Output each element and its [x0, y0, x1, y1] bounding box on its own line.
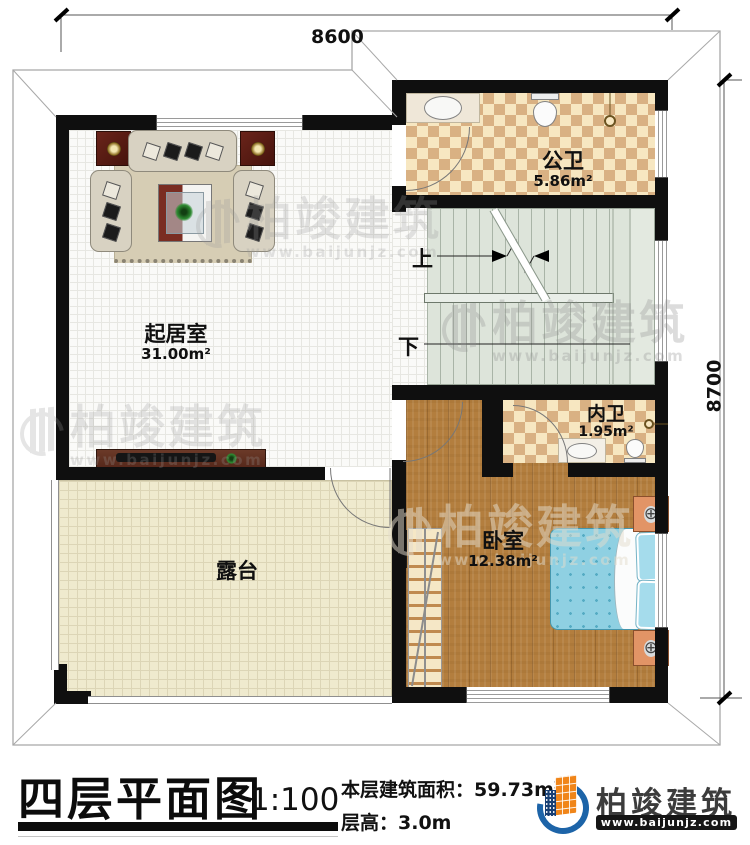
- title-underline: [18, 822, 338, 831]
- dimension-right: 8700: [703, 360, 725, 413]
- sheet-info: 本层建筑面积：59.73m2 层高：3.0m: [341, 774, 562, 841]
- floor-area-line: 本层建筑面积：59.73m2: [341, 774, 562, 807]
- room-label-terrace: 露台: [216, 560, 258, 583]
- floor-height-label: 层高：: [341, 812, 398, 834]
- floor-area-label: 本层建筑面积：: [341, 779, 474, 801]
- brand-logo-icon: [537, 772, 593, 838]
- floor-plan-page: ⊕ ⊕: [0, 0, 750, 845]
- room-label-public-bath: 公卫 5.86m²: [533, 150, 592, 189]
- floor-height-line: 层高：3.0m: [341, 807, 562, 840]
- sheet-title: 四层平面图: [18, 763, 263, 829]
- room-name: 起居室: [141, 323, 211, 346]
- room-name: 内卫: [578, 404, 633, 425]
- room-name: 卧室: [468, 530, 538, 553]
- plan-linework: [0, 0, 750, 845]
- room-name: 露台: [216, 560, 258, 583]
- stair-down-label: 下: [398, 331, 419, 361]
- room-label-bedroom: 卧室 12.38m²: [468, 530, 538, 569]
- floor-height-value: 3.0m: [398, 812, 451, 834]
- brand-url: www.baijunjz.com: [596, 815, 737, 830]
- room-area: 5.86m²: [533, 173, 592, 189]
- room-name: 公卫: [533, 150, 592, 173]
- room-area: 1.95m²: [578, 425, 633, 440]
- drawing-scale: 1:100: [250, 782, 339, 818]
- dimension-top: 8600: [311, 26, 364, 48]
- logo-building-blue: [545, 790, 556, 816]
- logo-building-orange: [555, 775, 577, 816]
- title-underline-thin: [18, 836, 338, 837]
- stair-up-label: 上: [412, 243, 433, 273]
- room-area: 12.38m²: [468, 553, 538, 569]
- room-area: 31.00m²: [141, 346, 211, 362]
- room-label-inner-bath: 内卫 1.95m²: [578, 404, 633, 440]
- room-label-living: 起居室 31.00m²: [141, 323, 211, 362]
